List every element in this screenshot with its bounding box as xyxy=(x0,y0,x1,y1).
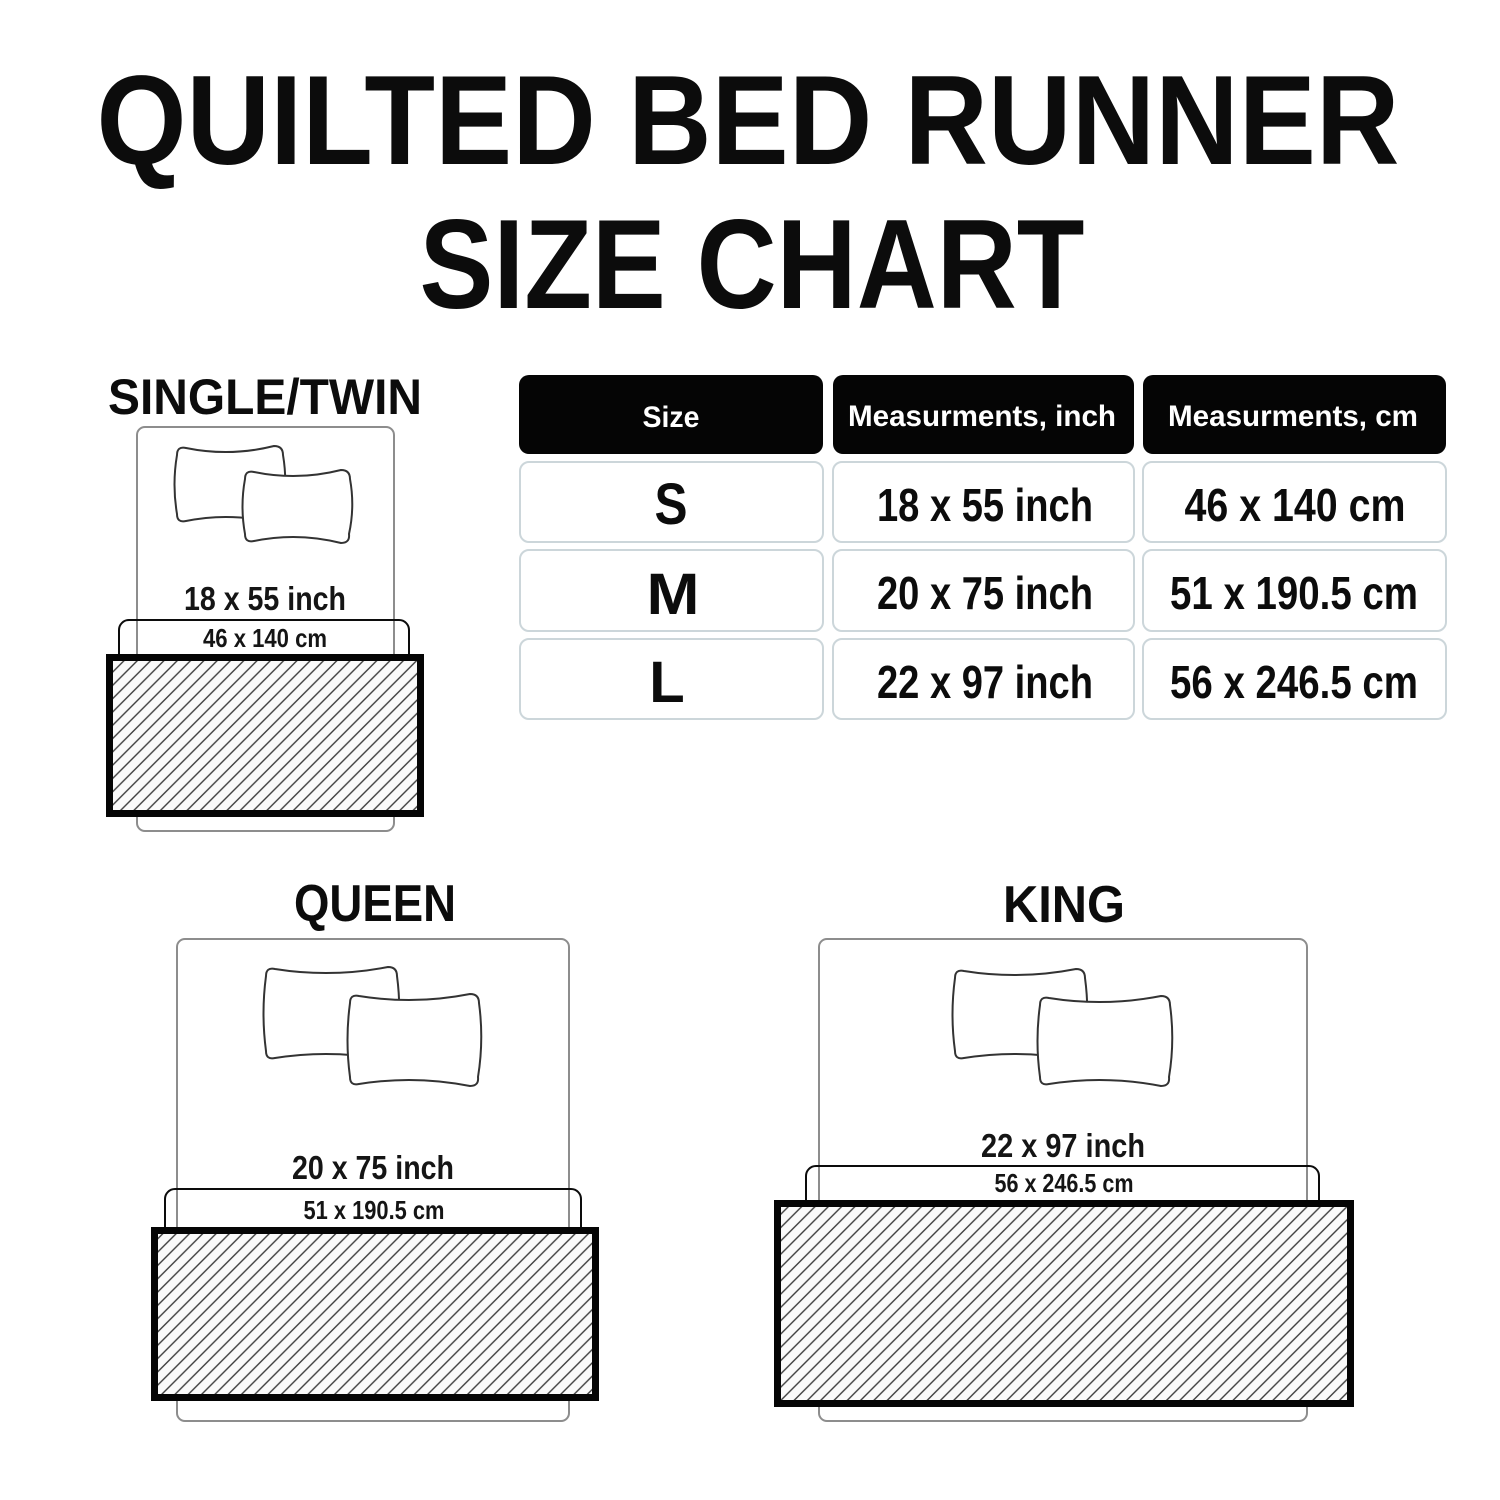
svg-text:46 x 140 cm: 46 x 140 cm xyxy=(1185,479,1406,531)
svg-text:KING: KING xyxy=(1003,876,1125,934)
svg-text:M: M xyxy=(647,562,700,627)
svg-text:QUEEN: QUEEN xyxy=(294,875,456,933)
svg-text:Measurments, inch: Measurments, inch xyxy=(848,400,1116,433)
svg-text:SIZE CHART: SIZE CHART xyxy=(420,193,1085,335)
svg-text:22 x 97 inch: 22 x 97 inch xyxy=(981,1127,1145,1164)
svg-text:S: S xyxy=(655,472,688,537)
svg-text:51 x 190.5 cm: 51 x 190.5 cm xyxy=(1170,567,1418,619)
svg-text:18 x 55 inch: 18 x 55 inch xyxy=(184,580,346,617)
svg-text:18 x 55 inch: 18 x 55 inch xyxy=(877,479,1093,531)
svg-text:20 x 75 inch: 20 x 75 inch xyxy=(292,1149,454,1186)
svg-text:Measurments, cm: Measurments, cm xyxy=(1168,400,1418,433)
svg-text:L: L xyxy=(649,650,684,715)
svg-text:Size: Size xyxy=(643,401,700,434)
svg-text:51 x 190.5 cm: 51 x 190.5 cm xyxy=(304,1195,445,1225)
svg-text:22 x 97 inch: 22 x 97 inch xyxy=(877,656,1093,708)
svg-text:SINGLE/TWIN: SINGLE/TWIN xyxy=(108,369,422,425)
svg-text:56 x 246.5 cm: 56 x 246.5 cm xyxy=(995,1168,1134,1198)
svg-text:QUILTED BED RUNNER: QUILTED BED RUNNER xyxy=(97,49,1400,191)
svg-text:46 x 140 cm: 46 x 140 cm xyxy=(203,623,327,653)
svg-text:56 x 246.5 cm: 56 x 246.5 cm xyxy=(1170,656,1418,708)
svg-text:20 x 75 inch: 20 x 75 inch xyxy=(877,567,1093,619)
